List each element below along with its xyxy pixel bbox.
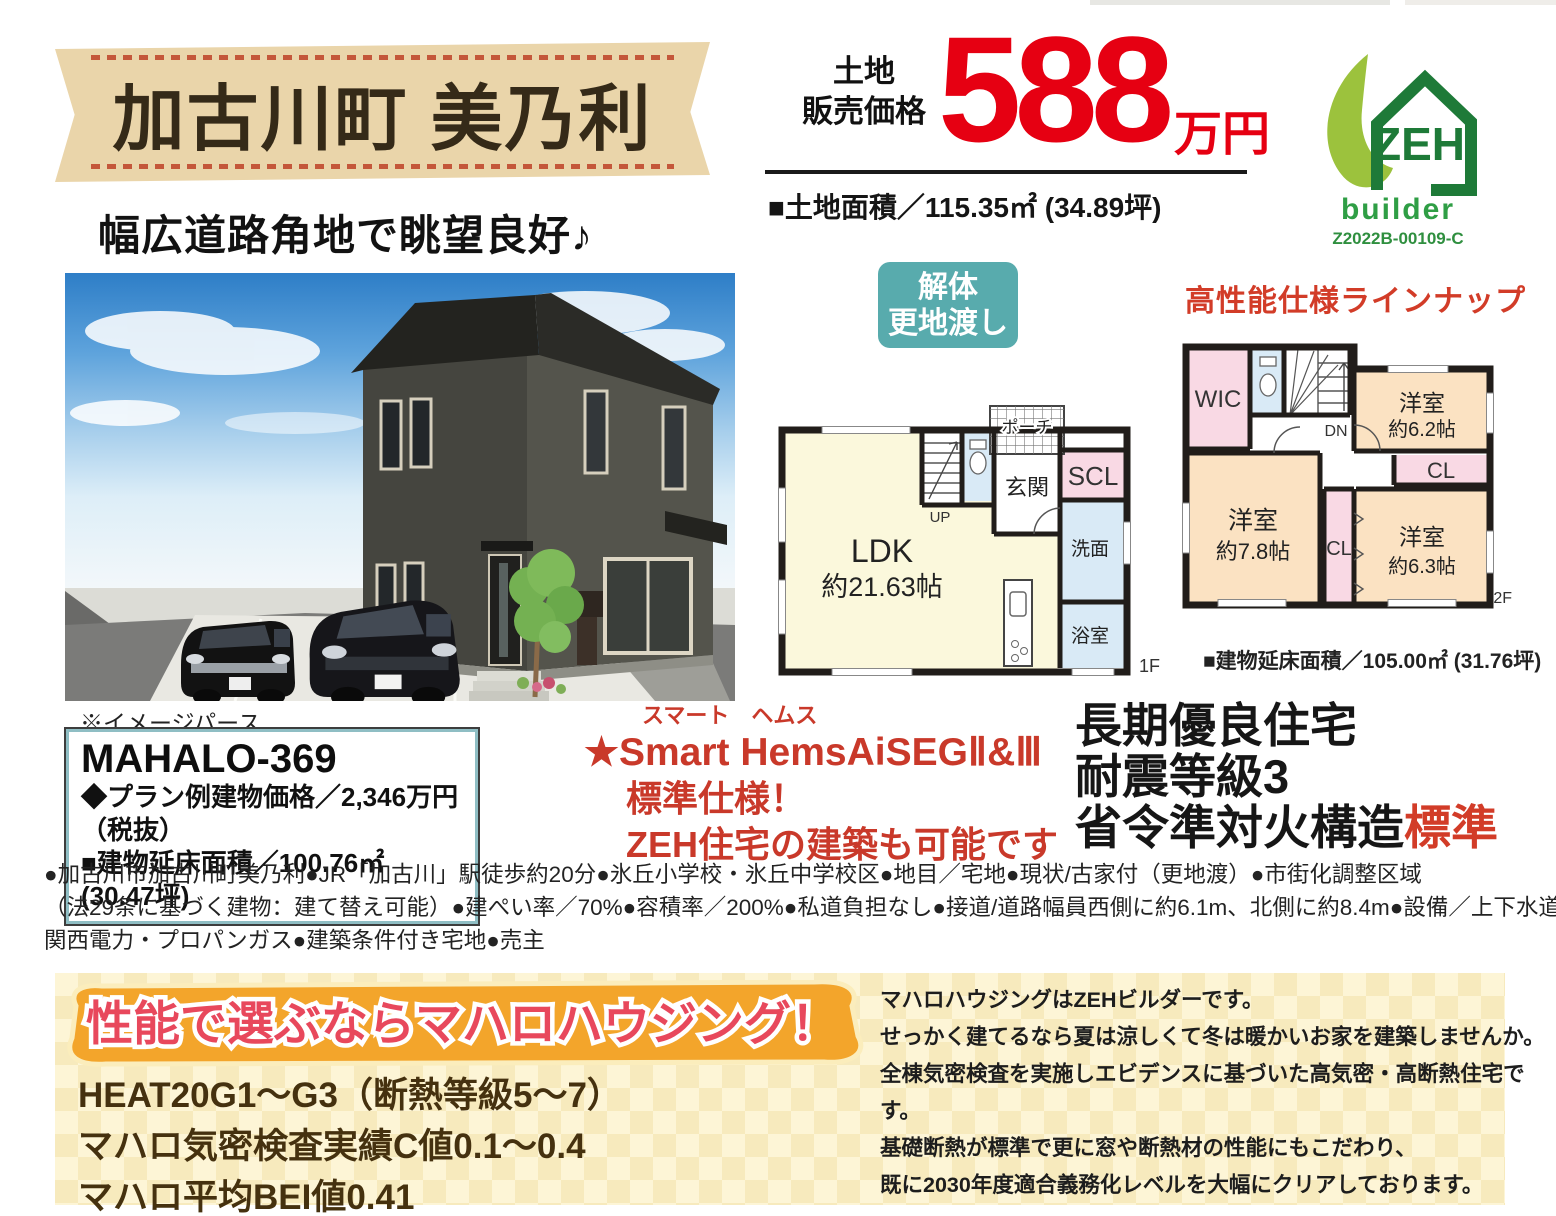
label-room3: 洋室 [1399,524,1445,550]
zeh-builder-logo: ZEH builder Z2022B-00109-C [1302,48,1494,249]
label-wic: WIC [1195,386,1242,413]
label-cl2: CL [1326,538,1352,560]
location-ribbon: 加古川町 美乃利 [55,42,710,182]
label-ldk: LDK [851,533,913,569]
label-room1: 洋室 [1399,390,1445,416]
house-render-image [65,273,735,701]
hems-line2: 標準仕様！ [626,776,1058,822]
company-description: マハロハウジングはZEHビルダーです。 せっかく建てるなら夏は涼しくて冬は暖かい… [880,982,1556,1204]
label-bath: 浴室 [1071,625,1109,647]
price-unit: 万円 [1174,94,1270,164]
label-scl: SCL [1068,461,1119,491]
hems-line1: ★Smart HemsAiSEGⅡ&Ⅲ [584,730,1058,776]
catchphrase: 幅広道路角地で眺望良好♪ [98,202,593,263]
zeh-builder-code: Z2022B-00109-C [1302,229,1494,249]
label-1f: 1F [1139,656,1160,676]
label-cl1: CL [1427,458,1455,483]
floorplan-2f: WIC DN 洋室 約6.2帖 CL 洋室 約7.8帖 CL 洋室 約6.3帖 … [1178,333,1514,621]
label-dn: DN [1324,423,1347,440]
price-label-line1: 土地 [786,52,942,92]
desc-line3: 全棟気密検査を実施しエビデンスに基づいた高気密・高断熱住宅です。 [880,1056,1556,1130]
label-ldk-size: 約21.63帖 [821,572,943,602]
badge-line1: 解体 [878,270,1018,306]
details-line2: （法29条に基づく建物：建て替え可能）●建ぺい率／70%●容積率／200%●私道… [44,891,1550,924]
floorplan-1f: LDK 約21.63帖 UP ポーチ 玄関 SCL 洗面 浴室 1F [772,400,1164,692]
building-area-text: ■建物延床面積／105.00㎡ (31.76坪) [1203,645,1541,675]
banner-title: 性能で選ぶならマハロハウジング！ [86,997,838,1050]
price-label: 土地 販売価格 [786,52,942,132]
house-render-illustration [65,273,735,701]
badge-line2: 更地渡し [878,306,1018,342]
demolition-badge: 解体 更地渡し [878,262,1018,348]
flyer-page: 加古川町 美乃利 幅広道路角地で眺望良好♪ 土地 販売価格 588 万円 ■土地… [0,0,1556,1216]
top-edge-artifact [1405,0,1556,5]
land-area-text: ■土地面積／115.35㎡ (34.89坪) [768,186,1162,226]
details-line3: 関西電力・プロパンガス●建築条件付き宅地●売主 [44,924,1550,957]
label-porch: ポーチ [1002,418,1053,437]
hems-furigana: スマート ヘムス [642,698,1058,730]
spec-line2: マハロ気密検査実績C値0.1～0.4 [78,1121,622,1172]
lineup-title: 高性能仕様ラインナップ [1185,276,1526,320]
zeh-builder-text: builder [1302,193,1494,227]
performance-specs: HEAT20G1～G3（断熱等級5～7） マハロ気密検査実績C値0.1～0.4 … [78,1070,622,1216]
plan-name: MAHALO-369 [81,737,463,781]
label-2f: 2F [1493,590,1512,607]
label-genkan: 玄関 [1005,475,1049,500]
desc-line4: 基礎断熱が標準で更に窓や断熱材の性能にもこだわり、 [880,1130,1556,1167]
property-details: ●加古川市加古川町美乃利●JR「加古川」駅徒歩約20分●氷丘小学校・氷丘中学校区… [44,858,1550,957]
spec-line3: マハロ平均BEI値0.41 [78,1172,622,1216]
label-up: UP [930,509,951,526]
label-room2: 洋室 [1228,507,1278,535]
label-room1-size: 約6.2帖 [1388,418,1456,441]
cert-line3: 省令準対火構造標準 [1075,802,1498,853]
price-divider [765,170,1247,174]
certifications-block: 長期優良住宅 耐震等級3 省令準対火構造標準 [1075,700,1498,853]
details-line1: ●加古川市加古川町美乃利●JR「加古川」駅徒歩約20分●氷丘小学校・氷丘中学校区… [44,858,1550,891]
desc-line5: 既に2030年度適合義務化レベルを大幅にクリアしております。 [880,1167,1556,1204]
location-title: 加古川町 美乃利 [55,42,710,182]
price-value: 588 [938,14,1167,164]
car-right [310,601,460,701]
plan-price: ◆プラン例建物価格／2,346万円（税抜） [81,781,463,847]
price-label-line2: 販売価格 [786,92,942,132]
cert-line2: 耐震等級3 [1075,751,1498,802]
zeh-logo-text: ZEH [1373,118,1465,170]
zeh-house-leaf-icon: ZEH [1313,48,1483,196]
spec-line1: HEAT20G1～G3（断熱等級5～7） [78,1070,622,1121]
desc-line2: せっかく建てるなら夏は涼しくて冬は暖かいお家を建築しませんか。 [880,1019,1556,1056]
car-left [181,621,295,701]
cert-line1: 長期優良住宅 [1075,700,1498,751]
performance-banner: 性能で選ぶならマハロハウジング！ [58,980,870,1068]
label-senmen: 洗面 [1071,538,1109,560]
label-room3-size: 約6.3帖 [1388,555,1456,578]
label-room2-size: 約7.8帖 [1216,539,1291,564]
smart-hems-block: スマート ヘムス ★Smart HemsAiSEGⅡ&Ⅲ 標準仕様！ ZEH住宅… [584,698,1058,868]
desc-line1: マハロハウジングはZEHビルダーです。 [880,982,1556,1019]
